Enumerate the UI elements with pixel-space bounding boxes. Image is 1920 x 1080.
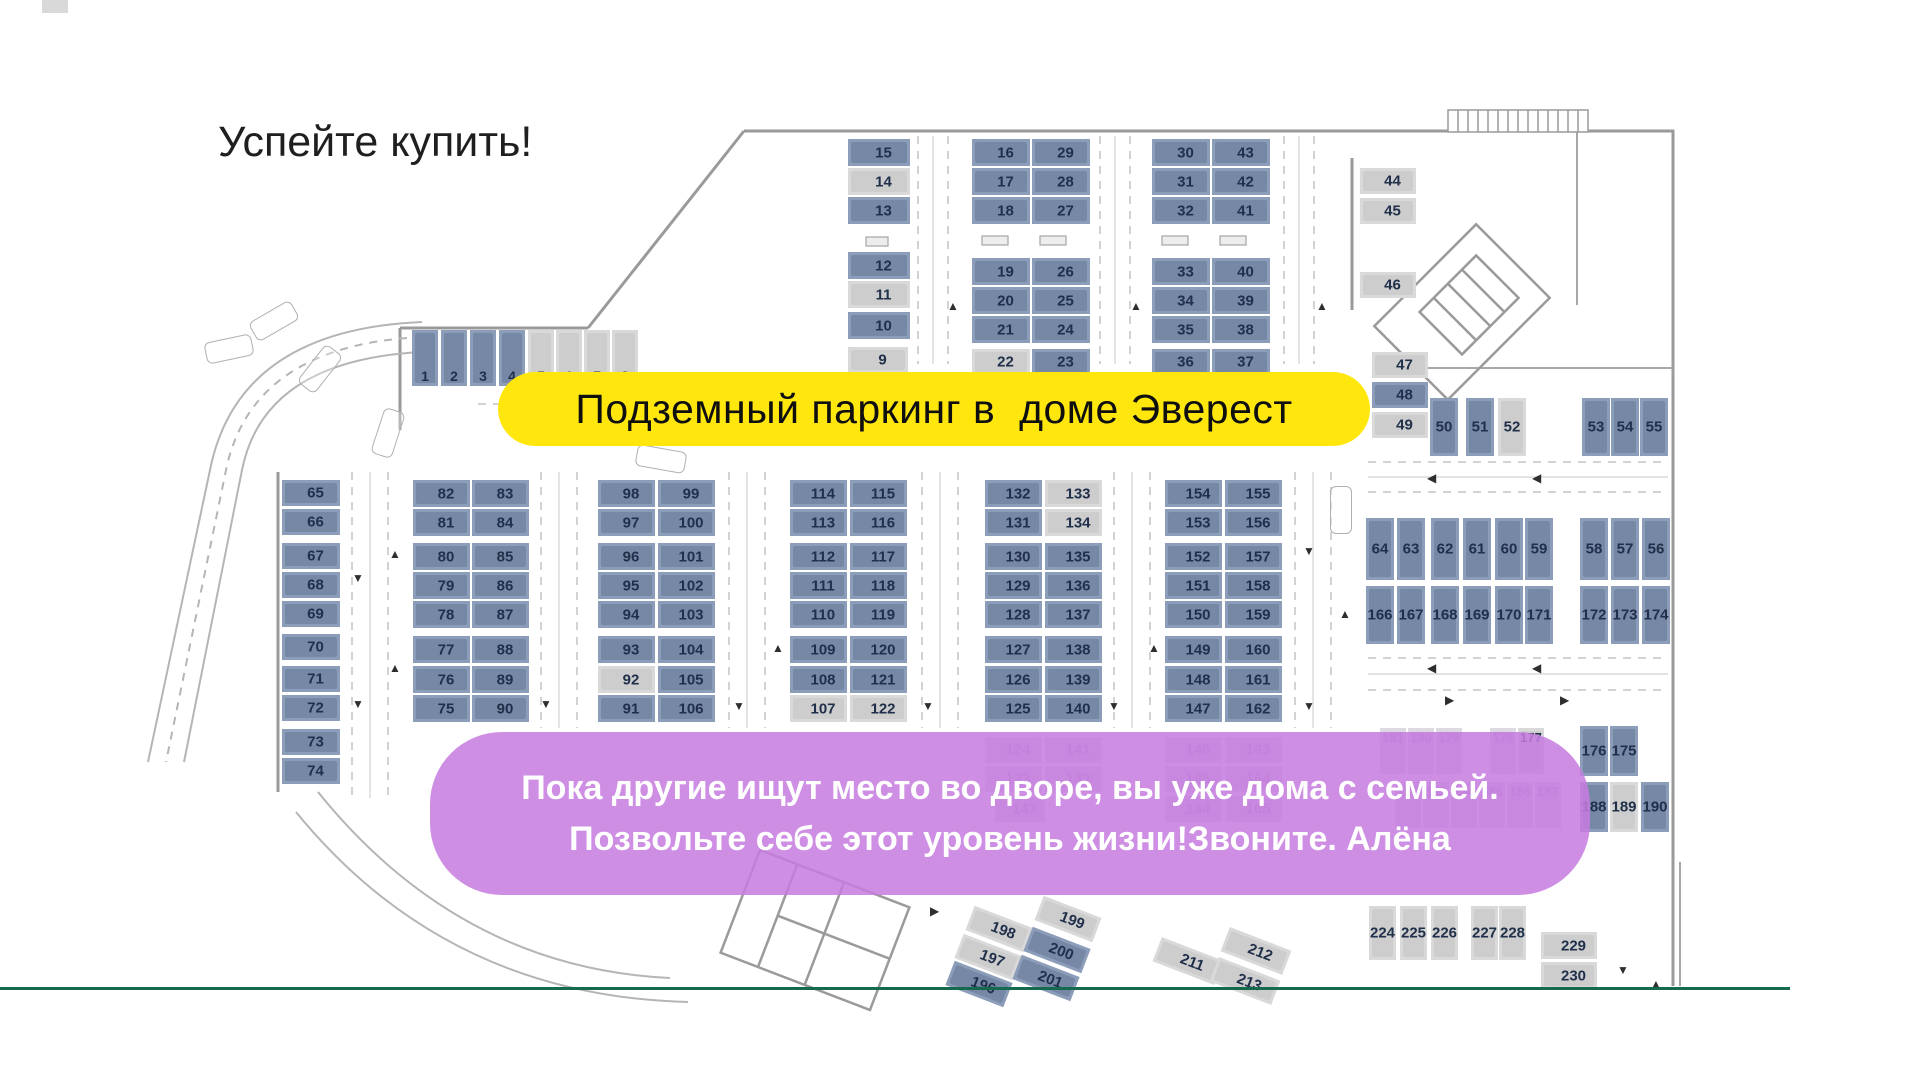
- parking-spot-62: 62: [1431, 518, 1459, 580]
- parking-spot-150: 150: [1165, 601, 1222, 628]
- parking-spot-109: 109: [790, 636, 847, 663]
- parking-spot-30: 30: [1152, 139, 1210, 166]
- lane-arrow-d: ▼: [540, 698, 552, 710]
- parking-spot-94: 94: [598, 601, 655, 628]
- parking-spot-116: 116: [850, 509, 907, 536]
- parking-spot-157: 157: [1225, 543, 1282, 570]
- parking-spot-107: 107: [790, 695, 847, 722]
- parking-spot-108: 108: [790, 666, 847, 693]
- promo-line-2: Позвольте себе этот уровень жизни!Звонит…: [569, 819, 1451, 860]
- parking-spot-176: 176: [1580, 726, 1608, 776]
- parking-spot-127: 127: [985, 636, 1042, 663]
- parking-spot-45: 45: [1360, 198, 1416, 224]
- parking-spot-28: 28: [1032, 168, 1090, 195]
- parking-spot-64: 64: [1366, 518, 1394, 580]
- parking-spot-168: 168: [1431, 586, 1459, 644]
- parking-spot-136: 136: [1045, 572, 1102, 599]
- parking-spot-16: 16: [972, 139, 1030, 166]
- parking-spot-85: 85: [472, 543, 529, 570]
- lane-arrow-d: ▼: [733, 700, 745, 712]
- parking-spot-134: 134: [1045, 509, 1102, 536]
- parking-spot-156: 156: [1225, 509, 1282, 536]
- parking-spot-60: 60: [1495, 518, 1523, 580]
- parking-spot-98: 98: [598, 480, 655, 507]
- parking-spot-75: 75: [413, 695, 470, 722]
- lane-arrow-l: ◀: [1427, 472, 1436, 484]
- parking-spot-57: 57: [1611, 518, 1639, 580]
- yellow-title-text: Подземный паркинг в доме Эверест: [575, 386, 1292, 433]
- parking-spot-128: 128: [985, 601, 1042, 628]
- bottom-green-line: [0, 987, 1790, 990]
- parking-spot-169: 169: [1463, 586, 1491, 644]
- parking-spot-79: 79: [413, 572, 470, 599]
- lane-arrow-d: ▼: [1617, 964, 1629, 976]
- parking-spot-167: 167: [1397, 586, 1425, 644]
- yellow-title-banner: Подземный паркинг в доме Эверест: [498, 372, 1370, 446]
- parking-spot-35: 35: [1152, 316, 1210, 343]
- lane-arrow-u: ▲: [772, 642, 784, 654]
- parking-spot-226: 226: [1431, 906, 1458, 960]
- parking-spot-99: 99: [658, 480, 715, 507]
- parking-spot-88: 88: [472, 636, 529, 663]
- lane-arrow-r: ▶: [1445, 694, 1454, 706]
- parking-spot-84: 84: [472, 509, 529, 536]
- parking-spot-97: 97: [598, 509, 655, 536]
- parking-spot-154: 154: [1165, 480, 1222, 507]
- parking-spot-80: 80: [413, 543, 470, 570]
- parking-spot-93: 93: [598, 636, 655, 663]
- parking-spot-113: 113: [790, 509, 847, 536]
- parking-spot-118: 118: [850, 572, 907, 599]
- parking-spot-153: 153: [1165, 509, 1222, 536]
- lane-arrow-d: ▼: [1303, 545, 1315, 557]
- parking-spot-166: 166: [1366, 586, 1394, 644]
- parking-spot-73: 73: [282, 729, 340, 755]
- parking-spot-114: 114: [790, 480, 847, 507]
- parking-spot-86: 86: [472, 572, 529, 599]
- lane-arrow-l: ◀: [1427, 662, 1436, 674]
- lane-arrow-d: ▼: [352, 572, 364, 584]
- parking-spot-59: 59: [1525, 518, 1553, 580]
- parking-spot-44: 44: [1360, 168, 1416, 194]
- parking-spot-49: 49: [1372, 412, 1428, 438]
- parking-spot-56: 56: [1642, 518, 1670, 580]
- parking-spot-175: 175: [1610, 726, 1638, 776]
- parking-spot-227: 227: [1471, 906, 1498, 960]
- parking-spot-74: 74: [282, 758, 340, 784]
- parking-spot-170: 170: [1495, 586, 1523, 644]
- parking-spot-72: 72: [282, 695, 340, 721]
- parking-spot-76: 76: [413, 666, 470, 693]
- parking-spot-90: 90: [472, 695, 529, 722]
- parking-spot-228: 228: [1499, 906, 1526, 960]
- parking-spot-15: 15: [848, 139, 910, 166]
- parking-spot-24: 24: [1032, 316, 1090, 343]
- parking-spot-78: 78: [413, 601, 470, 628]
- parking-spot-104: 104: [658, 636, 715, 663]
- parking-spot-101: 101: [658, 543, 715, 570]
- lane-arrow-l: ◀: [1532, 662, 1541, 674]
- parking-spot-55: 55: [1640, 398, 1668, 456]
- parking-spot-65: 65: [282, 480, 340, 506]
- parking-spot-66: 66: [282, 509, 340, 535]
- parking-plan-poster: 1514131211109161718192021222928272625242…: [0, 0, 1920, 1080]
- parking-spot-151: 151: [1165, 572, 1222, 599]
- parking-spot-162: 162: [1225, 695, 1282, 722]
- parking-spot-135: 135: [1045, 543, 1102, 570]
- parking-spot-18: 18: [972, 197, 1030, 224]
- parking-spot-53: 53: [1582, 398, 1610, 456]
- parking-spot-21: 21: [972, 316, 1030, 343]
- lane-arrow-l: ◀: [1532, 472, 1541, 484]
- parking-spot-83: 83: [472, 480, 529, 507]
- parking-spot-33: 33: [1152, 258, 1210, 285]
- parking-spot-132: 132: [985, 480, 1042, 507]
- lane-arrow-d: ▼: [922, 700, 934, 712]
- parking-spot-139: 139: [1045, 666, 1102, 693]
- parking-spot-173: 173: [1611, 586, 1639, 644]
- parking-spot-58: 58: [1580, 518, 1608, 580]
- parking-spot-95: 95: [598, 572, 655, 599]
- lane-arrow-u: ▲: [1339, 608, 1351, 620]
- parking-spot-10: 10: [848, 312, 910, 339]
- parking-spot-26: 26: [1032, 258, 1090, 285]
- parking-spot-174: 174: [1642, 586, 1670, 644]
- parking-spot-50: 50: [1430, 398, 1458, 456]
- parking-spot-224: 224: [1369, 906, 1396, 960]
- parking-spot-70: 70: [282, 634, 340, 660]
- parking-spot-152: 152: [1165, 543, 1222, 570]
- parking-spot-115: 115: [850, 480, 907, 507]
- parking-spot-87: 87: [472, 601, 529, 628]
- parking-spot-140: 140: [1045, 695, 1102, 722]
- lane-arrow-d: ▼: [1303, 700, 1315, 712]
- parking-spot-125: 125: [985, 695, 1042, 722]
- parking-spot-34: 34: [1152, 287, 1210, 314]
- parking-spot-81: 81: [413, 509, 470, 536]
- scan-artifact: [42, 0, 68, 13]
- parking-spot-129: 129: [985, 572, 1042, 599]
- parking-spot-111: 111: [790, 572, 847, 599]
- parking-spot-147: 147: [1165, 695, 1222, 722]
- parking-spot-148: 148: [1165, 666, 1222, 693]
- parking-spot-190: 190: [1641, 782, 1669, 832]
- parking-spot-1: 1: [412, 330, 438, 386]
- parking-spot-40: 40: [1212, 258, 1270, 285]
- parking-spot-42: 42: [1212, 168, 1270, 195]
- parking-spot-52: 52: [1498, 398, 1526, 456]
- parking-spot-189: 189: [1610, 782, 1638, 832]
- parking-spot-31: 31: [1152, 168, 1210, 195]
- parking-spot-51: 51: [1466, 398, 1494, 456]
- parking-spot-46: 46: [1360, 272, 1416, 298]
- parking-spot-105: 105: [658, 666, 715, 693]
- parking-spot-160: 160: [1225, 636, 1282, 663]
- lane-arrow-d: ▼: [352, 698, 364, 710]
- parking-spot-149: 149: [1165, 636, 1222, 663]
- purple-promo-banner: Пока другие ищут место во дворе, вы уже …: [430, 732, 1590, 895]
- parking-spot-63: 63: [1397, 518, 1425, 580]
- lane-arrow-u: ▲: [389, 548, 401, 560]
- parking-spot-41: 41: [1212, 197, 1270, 224]
- parking-spot-172: 172: [1580, 586, 1608, 644]
- parking-spot-103: 103: [658, 601, 715, 628]
- parking-spot-82: 82: [413, 480, 470, 507]
- promo-line-1: Пока другие ищут место во дворе, вы уже …: [521, 768, 1499, 809]
- parking-spot-100: 100: [658, 509, 715, 536]
- parking-spot-122: 122: [850, 695, 907, 722]
- parking-spot-54: 54: [1611, 398, 1639, 456]
- parking-spot-32: 32: [1152, 197, 1210, 224]
- parking-spot-121: 121: [850, 666, 907, 693]
- parking-spot-39: 39: [1212, 287, 1270, 314]
- parking-spot-133: 133: [1045, 480, 1102, 507]
- parking-spot-155: 155: [1225, 480, 1282, 507]
- parking-spot-106: 106: [658, 695, 715, 722]
- headline: Успейте купить!: [218, 118, 532, 167]
- parking-spot-3: 3: [470, 330, 496, 386]
- parking-spot-171: 171: [1525, 586, 1553, 644]
- parking-spot-38: 38: [1212, 316, 1270, 343]
- lane-arrow-d: ▼: [1108, 700, 1120, 712]
- parking-spot-67: 67: [282, 543, 340, 569]
- parking-spot-229: 229: [1541, 932, 1597, 959]
- parking-spot-71: 71: [282, 666, 340, 692]
- parking-spot-225: 225: [1400, 906, 1427, 960]
- parking-spot-112: 112: [790, 543, 847, 570]
- parking-spot-89: 89: [472, 666, 529, 693]
- parking-spot-161: 161: [1225, 666, 1282, 693]
- parking-spot-27: 27: [1032, 197, 1090, 224]
- parking-spot-20: 20: [972, 287, 1030, 314]
- parking-spot-230: 230: [1541, 962, 1597, 989]
- parking-spot-43: 43: [1212, 139, 1270, 166]
- parking-spot-137: 137: [1045, 601, 1102, 628]
- lane-arrow-u: ▲: [1130, 300, 1142, 312]
- parking-spot-14: 14: [848, 168, 910, 195]
- parking-spot-11: 11: [848, 281, 910, 308]
- parking-spot-77: 77: [413, 636, 470, 663]
- lane-arrow-u: ▲: [1316, 300, 1328, 312]
- parking-spot-12: 12: [848, 252, 910, 279]
- parking-spot-19: 19: [972, 258, 1030, 285]
- car-outline: [1330, 486, 1352, 534]
- parking-spot-47: 47: [1372, 352, 1428, 378]
- parking-spot-119: 119: [850, 601, 907, 628]
- parking-spot-13: 13: [848, 197, 910, 224]
- parking-spot-17: 17: [972, 168, 1030, 195]
- parking-spot-91: 91: [598, 695, 655, 722]
- parking-spot-29: 29: [1032, 139, 1090, 166]
- parking-spot-131: 131: [985, 509, 1042, 536]
- lane-arrow-r: ▶: [930, 905, 939, 917]
- parking-spot-126: 126: [985, 666, 1042, 693]
- lane-arrow-u: ▲: [389, 662, 401, 674]
- parking-spot-92: 92: [598, 666, 655, 693]
- parking-spot-69: 69: [282, 601, 340, 627]
- parking-spot-9: 9: [848, 347, 908, 373]
- lane-arrow-u: ▲: [1148, 642, 1160, 654]
- parking-spot-102: 102: [658, 572, 715, 599]
- parking-spot-68: 68: [282, 572, 340, 598]
- parking-spot-158: 158: [1225, 572, 1282, 599]
- parking-spot-130: 130: [985, 543, 1042, 570]
- parking-spot-159: 159: [1225, 601, 1282, 628]
- parking-spot-117: 117: [850, 543, 907, 570]
- parking-spot-96: 96: [598, 543, 655, 570]
- parking-spot-120: 120: [850, 636, 907, 663]
- parking-spot-110: 110: [790, 601, 847, 628]
- lane-arrow-u: ▲: [947, 300, 959, 312]
- parking-spot-25: 25: [1032, 287, 1090, 314]
- parking-spot-48: 48: [1372, 382, 1428, 408]
- parking-spot-61: 61: [1463, 518, 1491, 580]
- parking-spot-2: 2: [441, 330, 467, 386]
- parking-spot-138: 138: [1045, 636, 1102, 663]
- lane-arrow-r: ▶: [1560, 694, 1569, 706]
